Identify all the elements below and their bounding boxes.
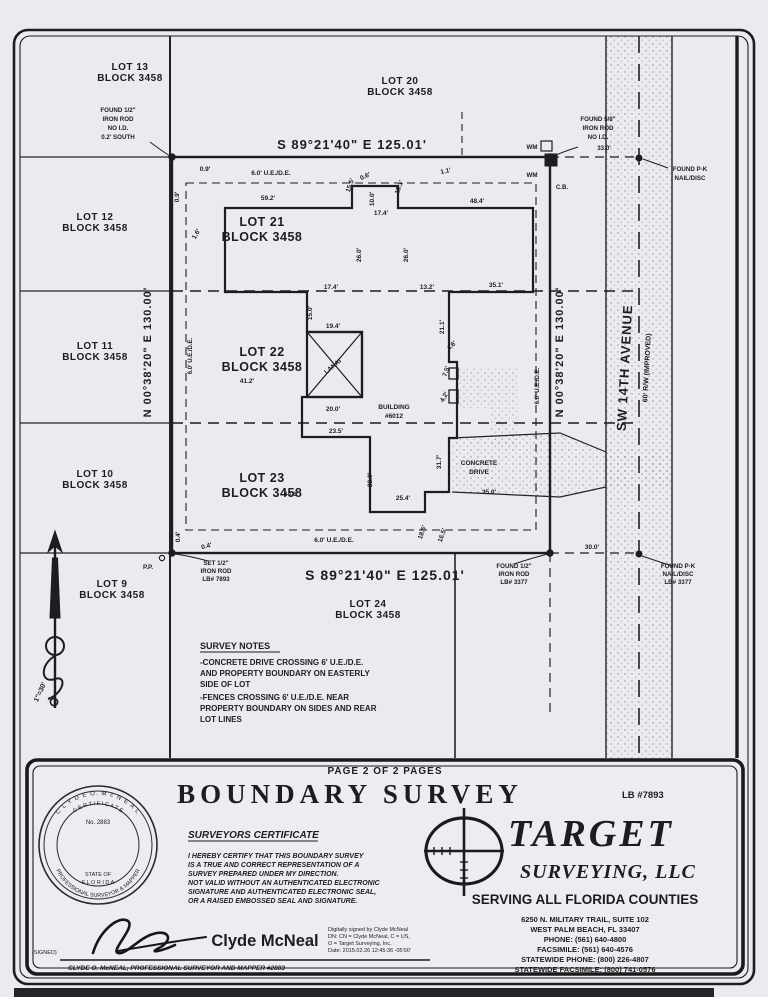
- svg-text:33.0': 33.0': [597, 145, 611, 152]
- svg-text:19.4': 19.4': [326, 323, 341, 330]
- svg-text:NAIL/DISC: NAIL/DISC: [675, 175, 706, 182]
- svg-text:F L O R I D A: F L O R I D A: [82, 880, 115, 886]
- svg-text:BLOCK 3458: BLOCK 3458: [62, 223, 128, 234]
- svg-text:FOUND 5/8": FOUND 5/8": [580, 116, 615, 123]
- svg-text:SET 1/2": SET 1/2": [203, 560, 228, 567]
- north-arrow: [44, 531, 64, 708]
- svg-text:35.1': 35.1': [489, 282, 504, 289]
- svg-text:BLOCK 3458: BLOCK 3458: [222, 360, 303, 374]
- svg-text:22.0': 22.0': [367, 472, 374, 487]
- page-count: PAGE 2 OF 2 PAGES: [328, 766, 443, 777]
- svg-text:WEST PALM BEACH, FL 33407: WEST PALM BEACH, FL 33407: [530, 925, 639, 934]
- svg-text:20.0': 20.0': [326, 406, 341, 413]
- svg-text:No. 2883: No. 2883: [86, 820, 111, 826]
- svg-text:35.0': 35.0': [482, 489, 497, 496]
- company-sub: SURVEYING, LLC: [520, 861, 696, 883]
- printed-name: Clyde McNeal: [211, 932, 318, 950]
- building-label: BUILDING: [378, 404, 409, 411]
- bearing-north: S 89°21'40" E 125.01': [277, 137, 427, 152]
- svg-text:6.0' U.E./D.E.: 6.0' U.E./D.E.: [314, 537, 354, 544]
- svg-text:41.2': 41.2': [240, 378, 255, 385]
- svg-text:7.5': 7.5': [441, 365, 451, 378]
- drive-label-1: CONCRETE: [461, 460, 498, 467]
- svg-text:LB# 3377: LB# 3377: [664, 579, 692, 586]
- svg-text:BLOCK 3458: BLOCK 3458: [62, 352, 128, 363]
- title-block: PAGE 2 OF 2 PAGES BOUNDARY SURVEY LB #78…: [27, 760, 743, 974]
- svg-text:0.9': 0.9': [174, 191, 181, 202]
- svg-text:NO I.D.: NO I.D.: [588, 134, 609, 141]
- svg-text:IRON ROD: IRON ROD: [499, 571, 530, 578]
- svg-text:1.1': 1.1': [440, 167, 452, 176]
- drive-label-2: DRIVE: [469, 469, 490, 476]
- svg-text:LB# 7893: LB# 7893: [202, 576, 230, 583]
- svg-text:4.6': 4.6': [446, 339, 459, 352]
- svg-text:FOUND 1/2": FOUND 1/2": [100, 107, 135, 114]
- svg-text:STATEWIDE FACSIMILE: (800) 74: STATEWIDE FACSIMILE: (800) 741-0576: [514, 965, 655, 974]
- svg-text:LOT 22: LOT 22: [239, 345, 284, 359]
- svg-text:LOT 9: LOT 9: [97, 579, 128, 590]
- svg-text:48.4': 48.4': [470, 198, 485, 205]
- svg-text:17.4': 17.4': [324, 284, 339, 291]
- svg-text:59.2': 59.2': [261, 195, 276, 202]
- svg-text:IRON ROD: IRON ROD: [201, 568, 232, 575]
- svg-text:BLOCK 3458: BLOCK 3458: [97, 73, 163, 84]
- svg-text:PROPERTY BOUNDARY ON SIDES AND: PROPERTY BOUNDARY ON SIDES AND REAR: [200, 704, 377, 713]
- svg-text:18.5': 18.5': [417, 524, 429, 540]
- svg-text:STATEWIDE PHONE: (800) 226-48: STATEWIDE PHONE: (800) 226-4807: [521, 955, 649, 964]
- svg-text:26.0': 26.0': [356, 247, 363, 262]
- svg-text:30.0': 30.0': [585, 544, 600, 551]
- svg-text:0.2' SOUTH: 0.2' SOUTH: [101, 134, 135, 141]
- survey-notes: SURVEY NOTES -CONCRETE DRIVE CROSSING 6'…: [200, 641, 377, 724]
- svg-text:17.4': 17.4': [374, 210, 389, 217]
- svg-text:LOT 12: LOT 12: [77, 212, 114, 223]
- svg-text:31.7': 31.7': [436, 454, 443, 469]
- svg-text:15.1': 15.1': [394, 179, 406, 195]
- svg-text:15.0': 15.0': [307, 305, 314, 320]
- svg-text:AND PROPERTY BOUNDARY ON EASTE: AND PROPERTY BOUNDARY ON EASTERLY: [200, 669, 370, 678]
- svg-text:25.4': 25.4': [396, 495, 411, 502]
- svg-text:-FENCES CROSSING 6' U.E./D.E.: -FENCES CROSSING 6' U.E./D.E. NEAR: [200, 693, 349, 702]
- bearing-south: S 89°21'40" E 125.01': [305, 567, 465, 583]
- svg-text:O = Target Surveying, Inc.: O = Target Surveying, Inc.: [328, 941, 392, 947]
- svg-text:21.1': 21.1': [439, 319, 446, 334]
- scanned-survey-page: SW 14TH AVENUE 60' R/W (IMPROVED): [0, 0, 768, 997]
- svg-text:0.9': 0.9': [200, 166, 211, 173]
- svg-text:STATE OF: STATE OF: [85, 872, 112, 878]
- svg-text:BLOCK 3458: BLOCK 3458: [367, 87, 433, 98]
- svg-text:LOT 13: LOT 13: [112, 62, 149, 73]
- lanai-label: LANAI: [323, 358, 343, 376]
- svg-text:LOT 10: LOT 10: [77, 469, 114, 480]
- svg-text:FOUND P-K: FOUND P-K: [673, 166, 708, 173]
- svg-text:13.2': 13.2': [420, 284, 435, 291]
- svg-text:NAIL/DISC: NAIL/DISC: [663, 571, 694, 578]
- svg-text:10.0': 10.0': [369, 191, 376, 206]
- svg-text:LOT 20: LOT 20: [382, 76, 419, 87]
- svg-text:6.0' U.E./D.E.: 6.0' U.E./D.E.: [188, 337, 194, 374]
- svg-text:IRON ROD: IRON ROD: [583, 125, 614, 132]
- svg-text:OR A RAISED EMBOSSED SEAL AND: OR A RAISED EMBOSSED SEAL AND SIGNATURE.: [188, 898, 357, 905]
- svg-text:BLOCK 3458: BLOCK 3458: [335, 610, 401, 621]
- svg-text:-CONCRETE DRIVE CROSSING 6' U.: -CONCRETE DRIVE CROSSING 6' U.E./D.E.: [200, 658, 363, 667]
- svg-text:LOT 11: LOT 11: [77, 341, 113, 352]
- svg-text:I HEREBY CERTIFY THAT THIS BOU: I HEREBY CERTIFY THAT THIS BOUNDARY SURV…: [188, 853, 365, 860]
- surveyor-title-line: CLYDE O. McNEAL, PROFESSIONAL SURVEYOR A…: [68, 965, 285, 972]
- building-number: #6012: [385, 413, 403, 420]
- svg-text:6.0' U.E./D.E.: 6.0' U.E./D.E.: [535, 367, 541, 404]
- svg-text:0.6': 0.6': [359, 171, 372, 182]
- svg-text:IRON ROD: IRON ROD: [103, 116, 134, 123]
- survey-sheet: SW 14TH AVENUE 60' R/W (IMPROVED): [0, 0, 768, 997]
- scan-bottom-strip: [14, 988, 714, 997]
- subject-lot-labels: LOT 21 BLOCK 3458 LOT 22 BLOCK 3458 LOT …: [222, 215, 303, 500]
- svg-text:1.6': 1.6': [191, 228, 203, 241]
- svg-text:LOT 23: LOT 23: [239, 471, 284, 485]
- company-name: TARGET: [508, 813, 674, 855]
- bearing-east: N 00°38'20" E 130.00': [554, 287, 566, 418]
- svg-text:LOT 21: LOT 21: [239, 215, 284, 229]
- svg-text:LOT 24: LOT 24: [350, 599, 387, 610]
- svg-text:LOT LINES: LOT LINES: [200, 715, 242, 724]
- survey-drawing: SW 14TH AVENUE 60' R/W (IMPROVED): [20, 36, 737, 758]
- svg-text:BLOCK 3458: BLOCK 3458: [222, 230, 303, 244]
- svg-text:SIDE OF LOT: SIDE OF LOT: [200, 680, 250, 689]
- svg-text:SURVEY PREPARED UNDER MY DIREC: SURVEY PREPARED UNDER MY DIRECTION.: [188, 871, 339, 878]
- svg-text:SURVEYORS CERTIFICATE: SURVEYORS CERTIFICATE: [188, 830, 319, 841]
- svg-text:FOUND P-K: FOUND P-K: [661, 563, 696, 570]
- sheet-title: BOUNDARY SURVEY: [177, 779, 523, 809]
- signed-label: (SIGNED): [32, 950, 57, 956]
- svg-text:0.4': 0.4': [175, 531, 182, 542]
- catch-basin-label: C.B.: [556, 184, 569, 191]
- power-pole-label: P.P.: [143, 564, 153, 571]
- water-meter-label-2: WM: [527, 172, 538, 179]
- svg-text:FACSIMILE: (561) 640-4576: FACSIMILE: (561) 640-4576: [537, 945, 633, 954]
- svg-text:26.0': 26.0': [403, 247, 410, 262]
- water-meter-label-1: WM: [527, 144, 538, 151]
- svg-text:LB# 3377: LB# 3377: [500, 579, 528, 586]
- svg-text:IS A TRUE AND CORRECT REPRESEN: IS A TRUE AND CORRECT REPRESENTATION OF …: [188, 862, 359, 869]
- svg-text:6.0' U.E./D.E.: 6.0' U.E./D.E.: [251, 170, 291, 177]
- svg-text:SIGNATURE AND AUTHENTICATED EL: SIGNATURE AND AUTHENTICATED ELECTRONIC S…: [188, 889, 376, 896]
- svg-text:Digitally signed by Clyde McNe: Digitally signed by Clyde McNeal: [328, 927, 408, 933]
- svg-text:NO I.D.: NO I.D.: [108, 125, 129, 132]
- company-tagline: SERVING ALL FLORIDA COUNTIES: [472, 892, 699, 907]
- svg-text:NOT VALID WITHOUT AN AUTHENTIC: NOT VALID WITHOUT AN AUTHENTICATED ELECT…: [188, 880, 381, 887]
- lb-number: LB #7893: [622, 790, 664, 801]
- svg-text:SURVEY NOTES: SURVEY NOTES: [200, 641, 270, 651]
- svg-text:FOUND 1/2": FOUND 1/2": [496, 563, 531, 570]
- svg-text:23.5': 23.5': [329, 428, 344, 435]
- svg-text:Date: 2015.02.26 12:45:36 -05': Date: 2015.02.26 12:45:36 -05'00': [328, 948, 411, 954]
- svg-text:BLOCK 3458: BLOCK 3458: [79, 590, 145, 601]
- svg-text:64.6': 64.6': [284, 491, 299, 498]
- svg-text:BLOCK 3458: BLOCK 3458: [62, 480, 128, 491]
- bearing-west: N 00°38'20" E 130.00': [142, 287, 154, 418]
- svg-text:PHONE: (561) 640-4800: PHONE: (561) 640-4800: [544, 935, 627, 944]
- svg-text:6250 N. MILITARY TRAIL, SUITE: 6250 N. MILITARY TRAIL, SUITE 102: [521, 915, 649, 924]
- svg-text:DN: CN = Clyde McNeal, C = US,: DN: CN = Clyde McNeal, C = US,: [328, 934, 410, 940]
- svg-text:0.4': 0.4': [201, 542, 213, 552]
- scale-note: 1"=30': [33, 681, 48, 703]
- monument-symbols: [150, 141, 672, 566]
